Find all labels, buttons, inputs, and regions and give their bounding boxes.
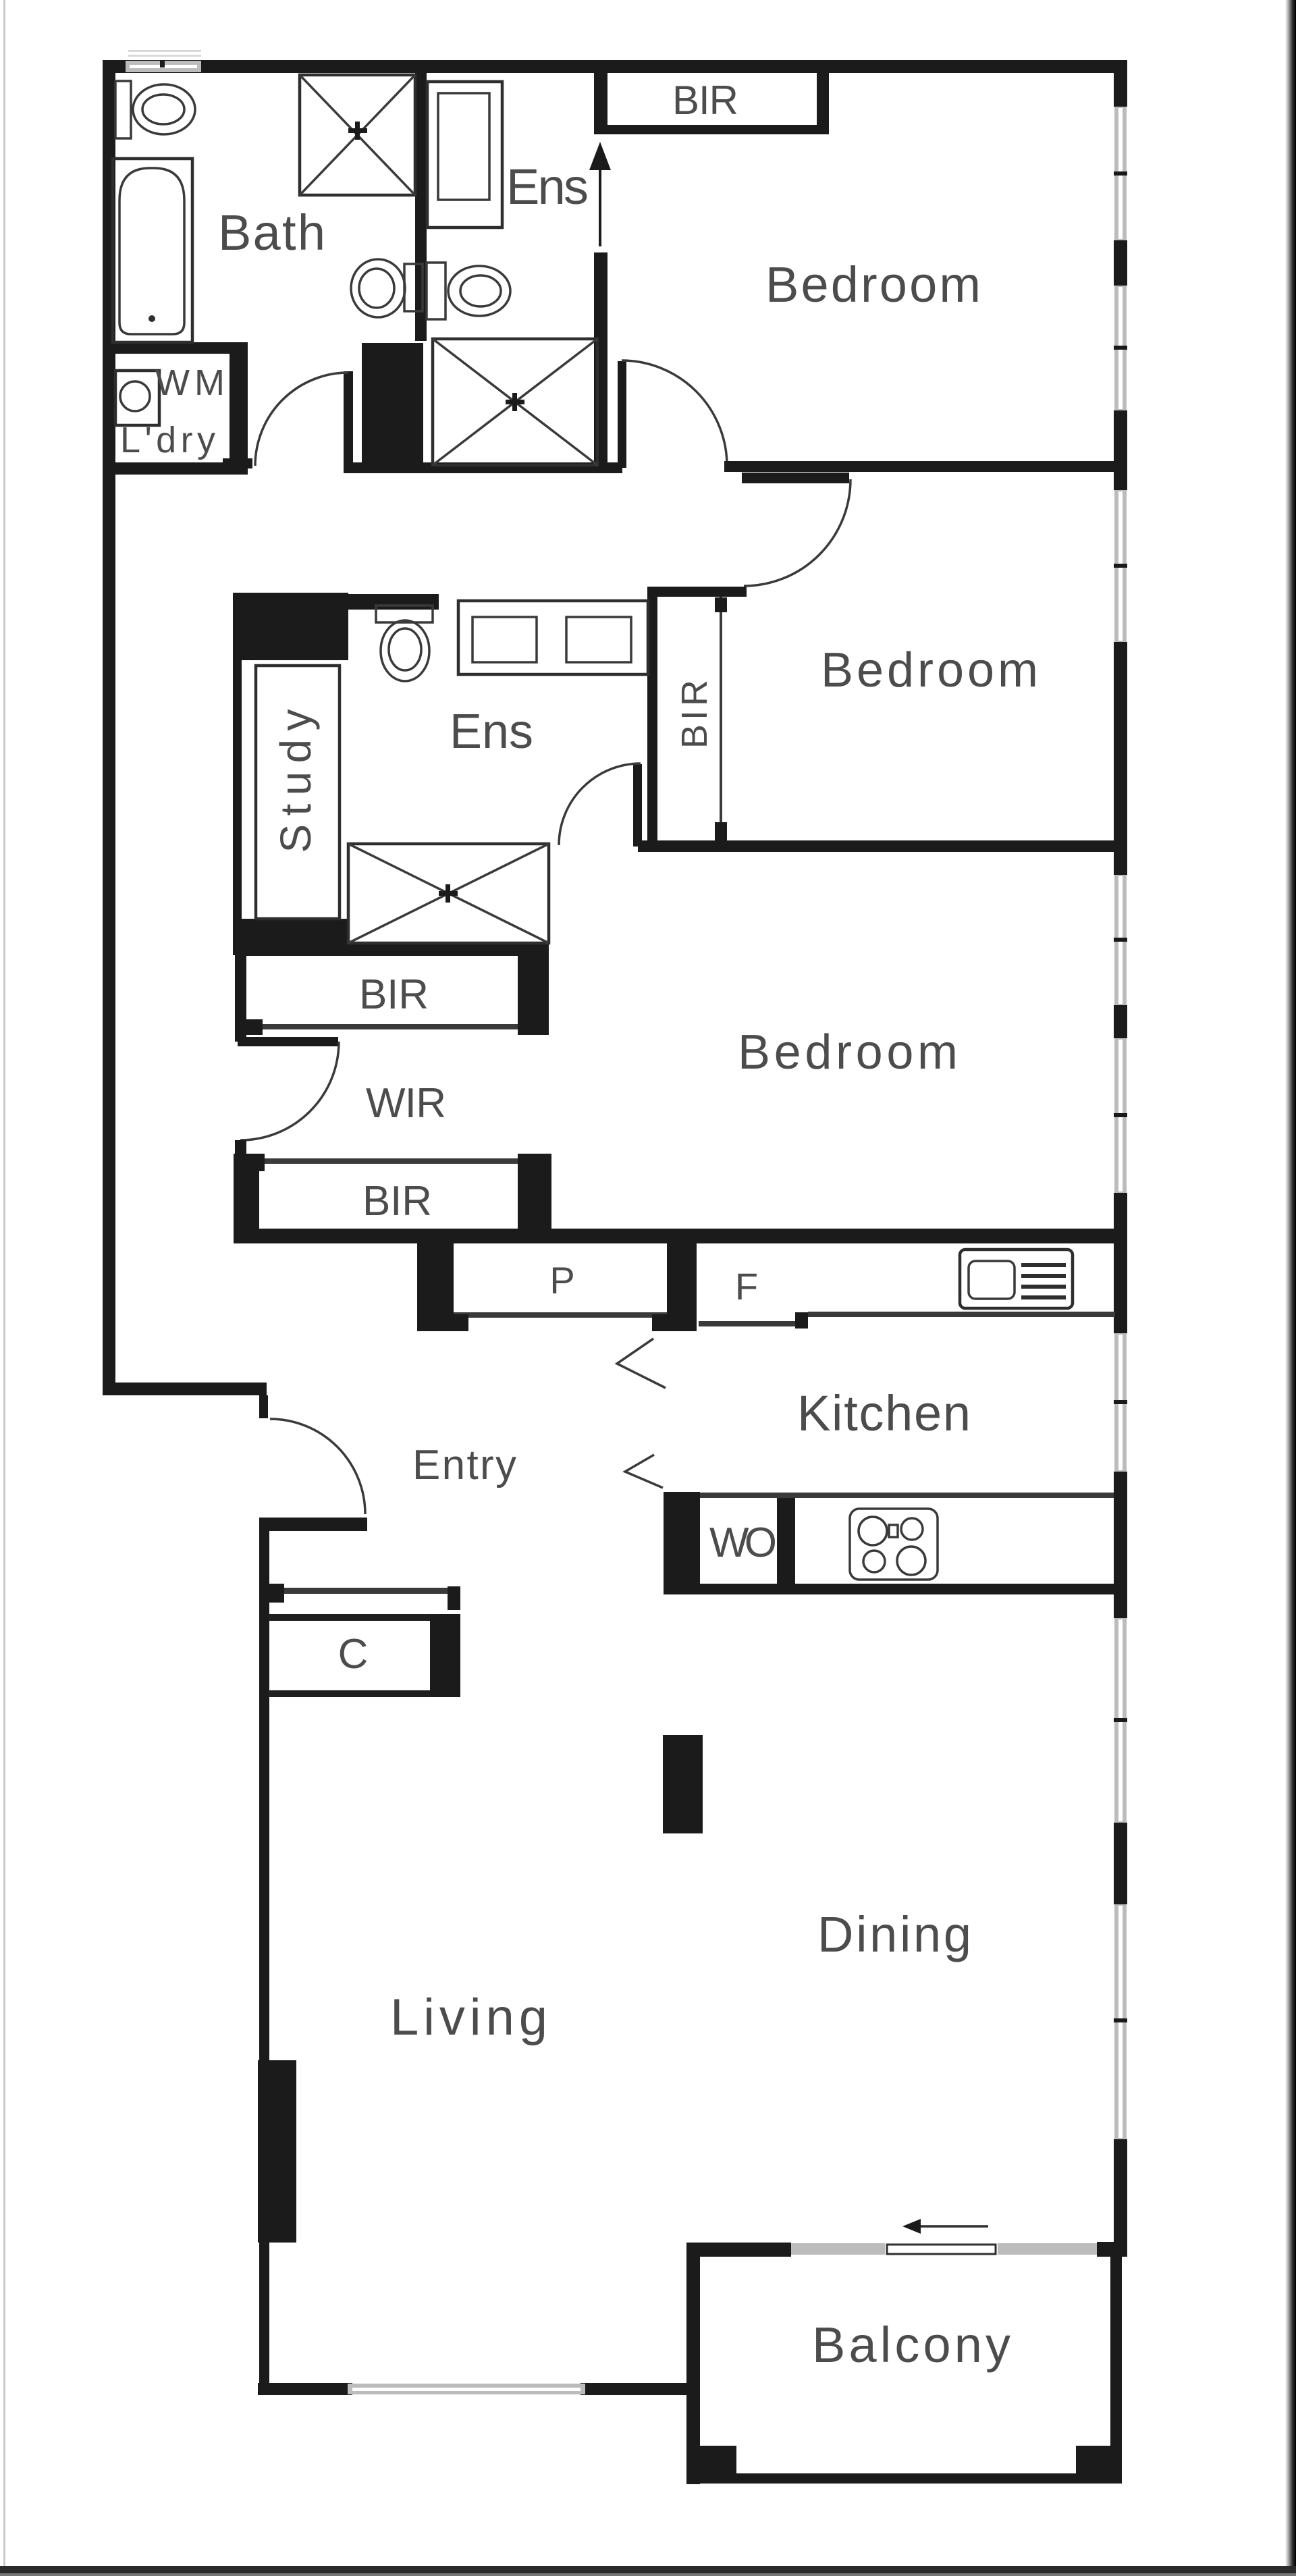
svg-text:BIR: BIR [672,78,738,123]
svg-text:L'dry: L'dry [120,420,215,460]
svg-text:BIR: BIR [362,1178,432,1225]
svg-text:C: C [338,1631,369,1678]
svg-text:WO: WO [709,1520,777,1566]
svg-text:Dining: Dining [817,1906,971,1962]
svg-text:Entry: Entry [412,1442,516,1488]
svg-text:Study: Study [271,709,320,853]
svg-text:WIR: WIR [366,1080,446,1127]
svg-text:F: F [735,1265,758,1308]
svg-text:BIR: BIR [674,680,715,749]
svg-text:Balcony: Balcony [812,2317,1010,2373]
svg-text:Ens: Ens [450,705,533,759]
svg-text:P: P [549,1259,574,1302]
svg-text:Bedroom: Bedroom [765,257,981,313]
svg-text:BIR: BIR [359,971,429,1018]
svg-text:Ens: Ens [506,159,589,215]
svg-text:Bath: Bath [218,205,325,261]
